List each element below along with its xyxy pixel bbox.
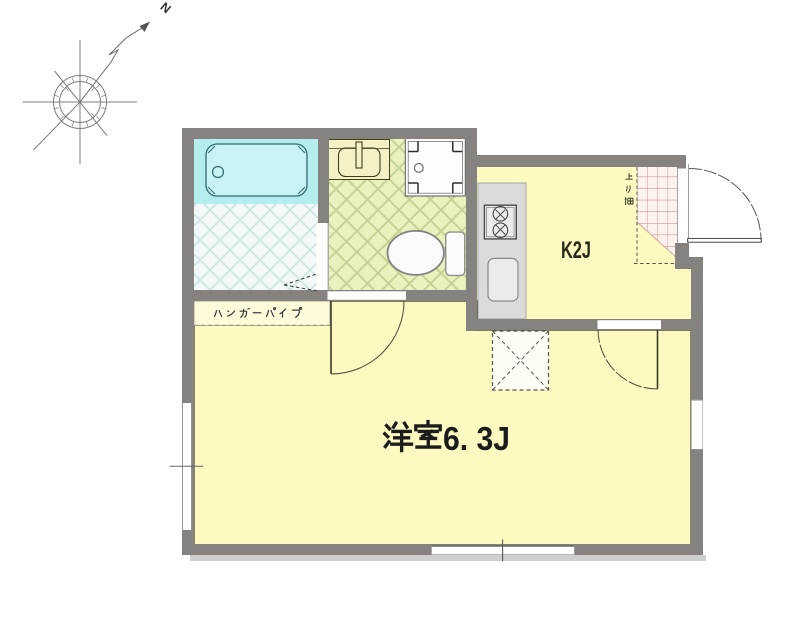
svg-text:6. 3J: 6. 3J bbox=[443, 420, 510, 457]
svg-text:K2J: K2J bbox=[561, 237, 591, 264]
